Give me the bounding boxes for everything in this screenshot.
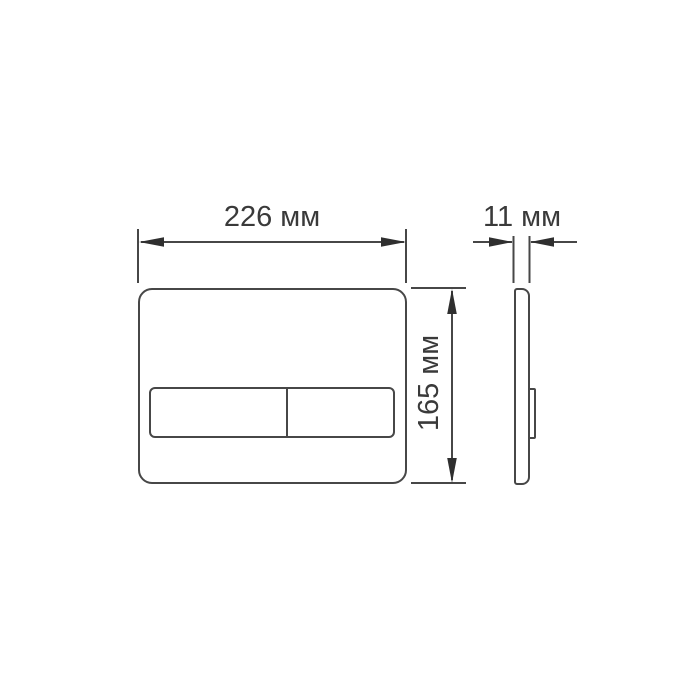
flush-button-small xyxy=(288,389,393,436)
arrow-inward-left-icon xyxy=(530,237,554,247)
depth-dimension xyxy=(473,236,577,283)
height-dimension-label: 165 мм xyxy=(409,303,449,463)
arrow-inward-right-icon xyxy=(489,237,513,247)
depth-dimension-label: 11 мм xyxy=(442,201,602,233)
dimension-drawing: 226 мм 11 мм 165 мм xyxy=(0,0,700,700)
arrow-left-icon xyxy=(139,237,164,247)
width-dimension-label: 226 мм xyxy=(192,201,352,233)
side-view-profile xyxy=(514,288,530,485)
width-dimension xyxy=(138,229,406,283)
arrow-right-icon xyxy=(381,237,406,247)
flush-button-large xyxy=(151,389,286,436)
front-view-plate xyxy=(138,288,407,484)
